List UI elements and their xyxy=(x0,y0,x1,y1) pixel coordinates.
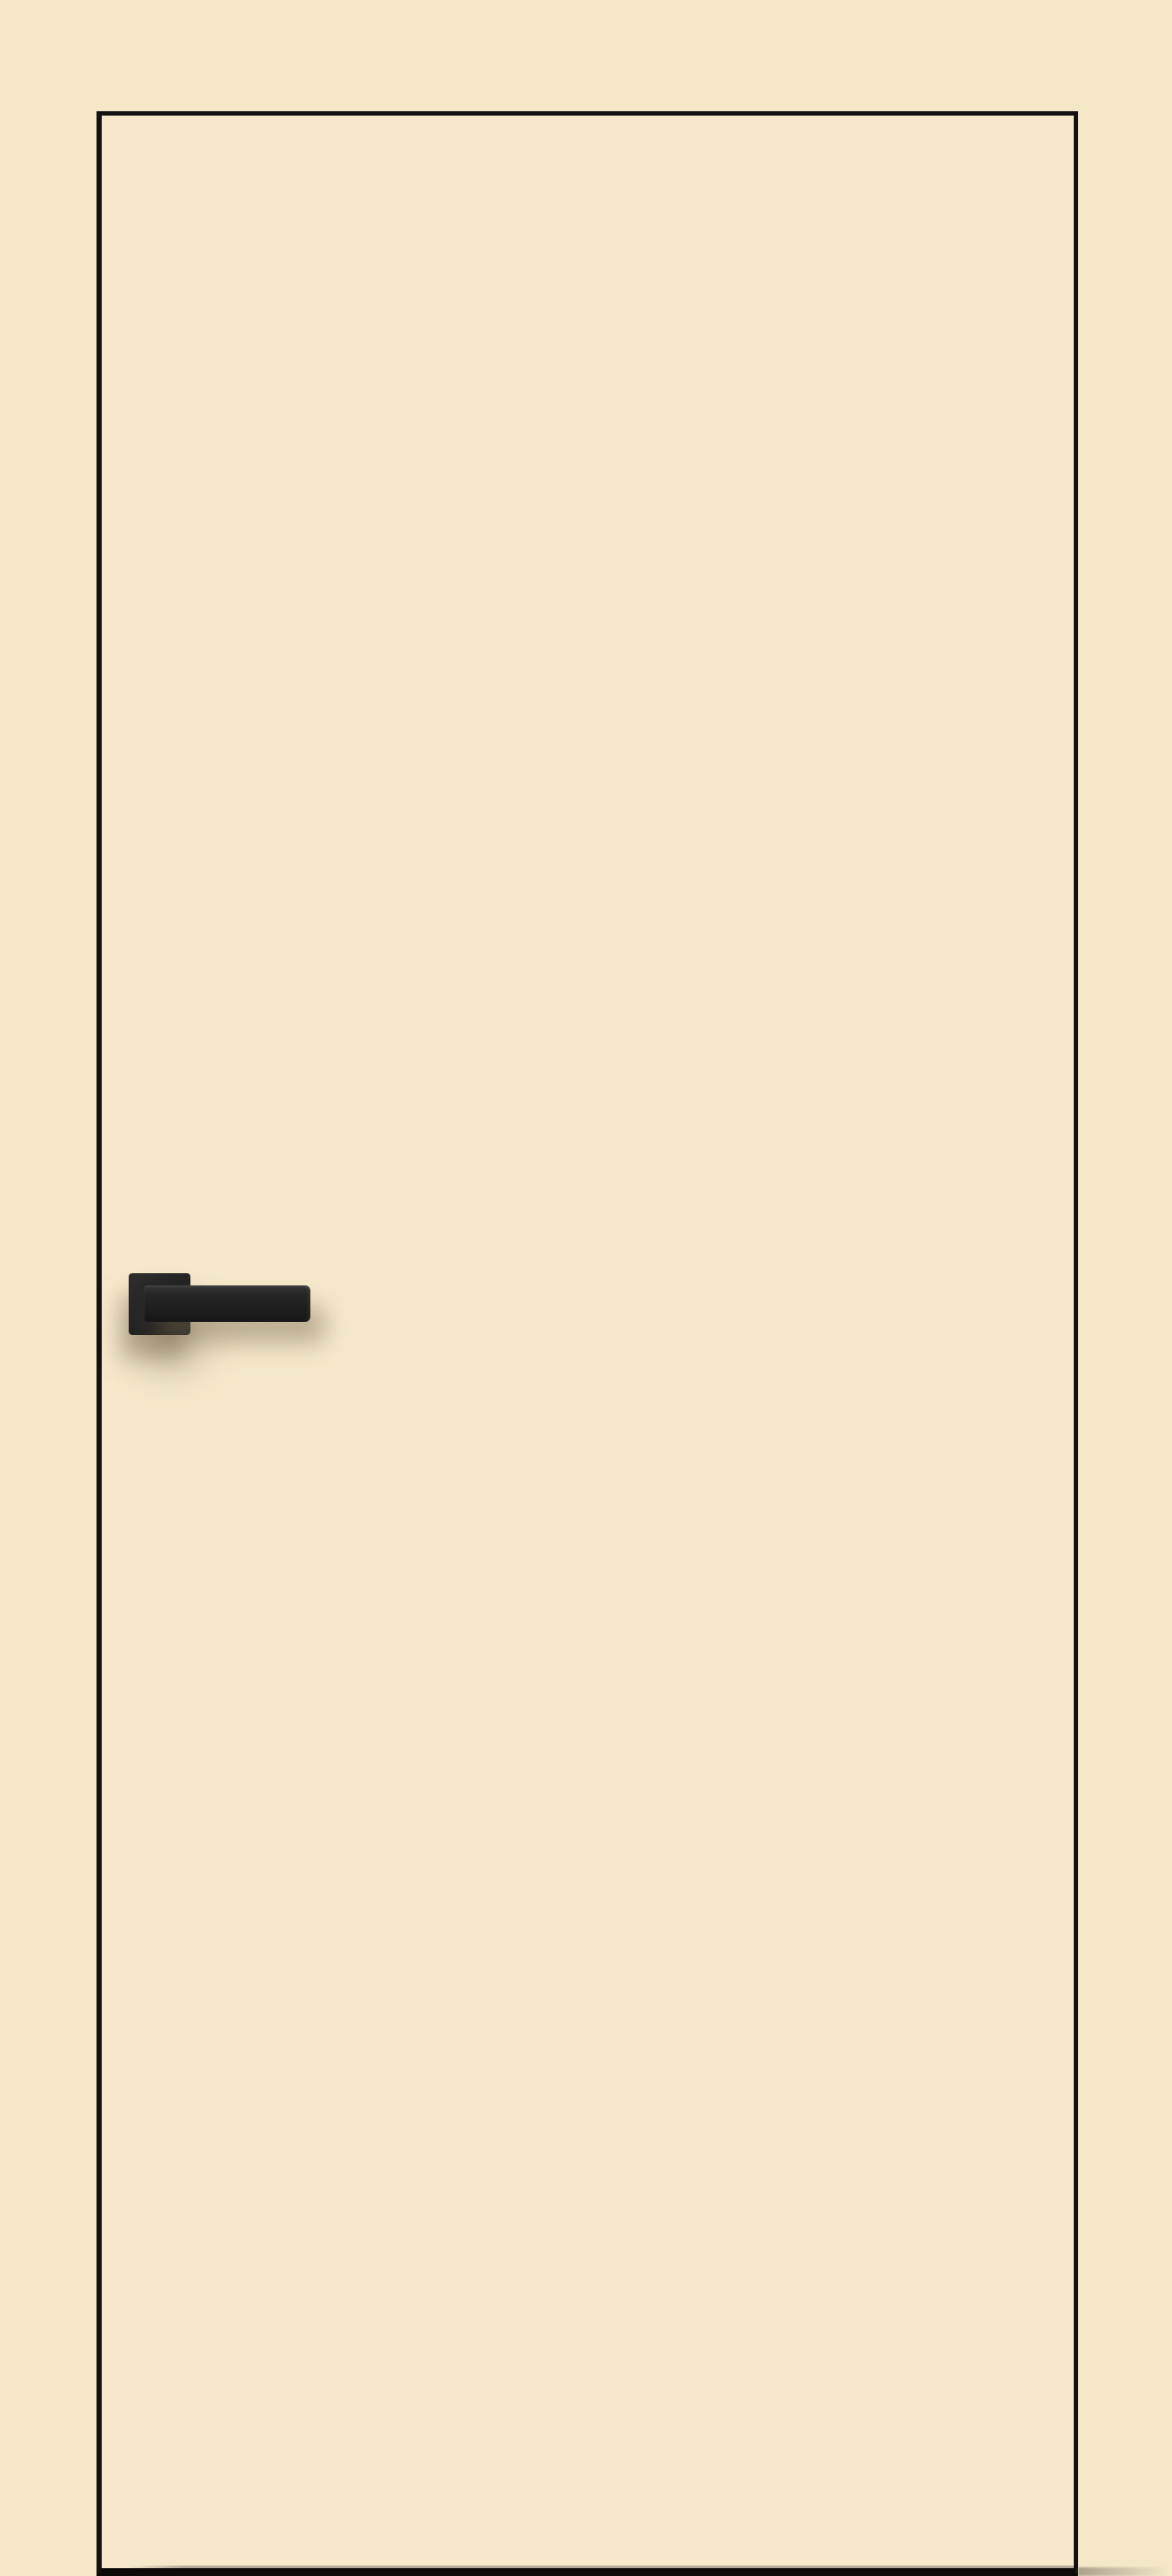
floor-shadow xyxy=(1078,2567,1169,2576)
door-product-photo xyxy=(0,0,1172,2576)
door-bottom-inner-shadow xyxy=(128,2566,1074,2568)
door-leaf xyxy=(97,111,1078,2576)
handle-lever xyxy=(144,1285,310,1322)
